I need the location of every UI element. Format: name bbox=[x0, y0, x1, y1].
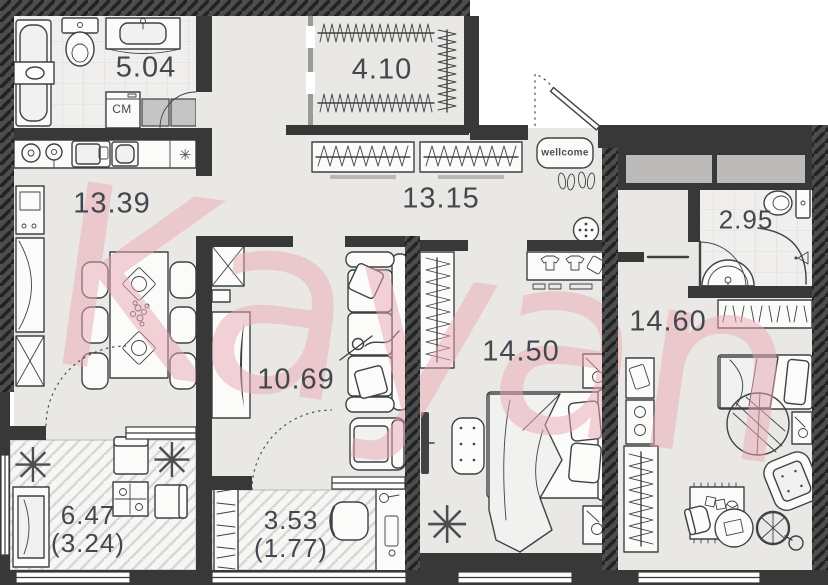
doormat-label: wellcome bbox=[541, 148, 588, 159]
balcony-chair-1 bbox=[114, 437, 148, 474]
area-label-bathroom-main: 5.04 bbox=[116, 52, 176, 85]
balcony-center-area-total: 3.53 bbox=[254, 506, 328, 534]
door-opening bbox=[196, 92, 212, 128]
floor-plan-drawing: ✳ bbox=[0, 0, 828, 585]
area-label-bedroom: 14.50 bbox=[482, 336, 560, 369]
area-label-hallway: 13.15 bbox=[402, 183, 480, 216]
area-label-wc-small: 2.95 bbox=[719, 205, 774, 236]
storage-rack bbox=[214, 484, 238, 572]
bath-cabinets bbox=[142, 99, 196, 126]
plant-icon: ✳ bbox=[13, 438, 53, 494]
entry-door bbox=[535, 74, 600, 130]
plant-icon: ✳ bbox=[425, 496, 469, 556]
balcony-center-area-reduced: (1.77) bbox=[254, 534, 328, 562]
balcony-left-area-total: 6.47 bbox=[51, 501, 125, 529]
area-label-kids-room: 14.60 bbox=[629, 306, 707, 339]
oven-icon bbox=[16, 186, 44, 234]
kitchen-cabinet bbox=[16, 238, 44, 332]
area-label-living-room: 10.69 bbox=[257, 364, 335, 397]
desk-chair-icon bbox=[331, 502, 369, 540]
balcony-chair-2 bbox=[155, 485, 187, 518]
bathtub-icon bbox=[14, 20, 54, 126]
area-label-balcony-center: 3.53 (1.77) bbox=[254, 506, 328, 562]
entry-cabinets bbox=[618, 148, 812, 190]
floor-plan: ✳ bbox=[0, 0, 828, 585]
area-label-balcony-left: 6.47 (3.24) bbox=[51, 501, 125, 557]
nightstand-kids bbox=[792, 412, 812, 444]
balcony-bench bbox=[13, 487, 49, 567]
area-label-kitchen-living: 13.39 bbox=[73, 188, 151, 221]
washing-machine-label: СМ bbox=[112, 102, 132, 116]
balcony-left-area-reduced: (3.24) bbox=[51, 529, 125, 557]
area-label-dressing-room: 4.10 bbox=[352, 54, 412, 87]
sink-main-icon bbox=[106, 18, 180, 54]
